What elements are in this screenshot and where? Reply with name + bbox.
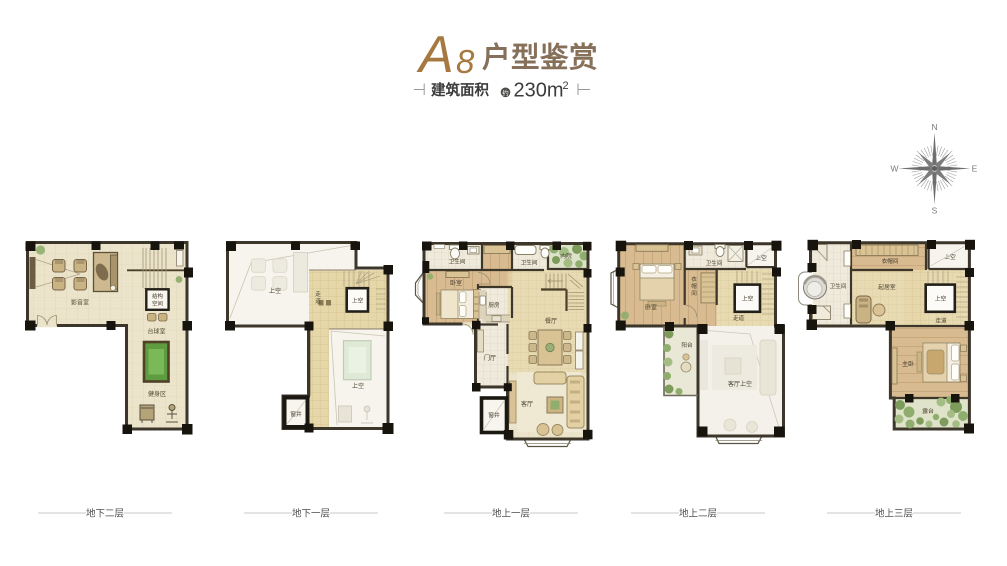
svg-text:约: 约 [502,88,509,97]
svg-text:露台: 露台 [922,407,934,415]
svg-text:台球室: 台球室 [147,328,165,336]
svg-text:结构: 结构 [152,292,163,300]
svg-text:衣帽间: 衣帽间 [882,257,899,265]
svg-text:卫生间: 卫生间 [449,258,466,266]
svg-text:N: N [931,122,937,132]
svg-text:卧室: 卧室 [450,279,462,287]
svg-text:2: 2 [563,80,569,92]
svg-text:衣: 衣 [691,275,697,283]
svg-text:卫生间: 卫生间 [521,259,538,267]
svg-text:卫生间: 卫生间 [830,282,847,290]
svg-text:230m: 230m [514,80,564,102]
svg-text:8: 8 [456,43,475,80]
svg-text:门厅: 门厅 [484,354,496,362]
svg-text:影音室: 影音室 [71,299,89,307]
svg-text:上空: 上空 [352,382,364,390]
svg-text:窗井: 窗井 [290,410,302,418]
svg-text:阳台: 阳台 [681,341,693,349]
svg-text:上空: 上空 [742,295,754,303]
svg-text:内院: 内院 [560,252,572,260]
svg-text:走: 走 [315,290,321,298]
svg-text:帽: 帽 [691,282,697,290]
svg-text:地下二层: 地下二层 [86,508,124,520]
svg-text:上空: 上空 [935,295,947,303]
svg-text:户型鉴赏: 户型鉴赏 [482,41,598,74]
svg-text:上空: 上空 [269,287,281,295]
svg-text:间: 间 [691,289,697,297]
svg-text:客厅: 客厅 [521,400,533,408]
svg-text:地上三层: 地上三层 [875,508,913,520]
svg-text:地上二层: 地上二层 [679,508,717,520]
svg-text:地下一层: 地下一层 [292,508,330,520]
svg-text:窗井: 窗井 [488,411,500,419]
svg-text:建筑面积: 建筑面积 [431,81,489,99]
svg-text:主卧: 主卧 [902,360,914,368]
svg-text:客厅上空: 客厅上空 [728,380,752,388]
svg-text:卫生间: 卫生间 [706,259,723,267]
svg-text:餐厅: 餐厅 [545,317,557,325]
svg-text:地上一层: 地上一层 [492,508,530,520]
svg-text:走道: 走道 [733,314,745,322]
svg-text:健身区: 健身区 [148,390,166,398]
svg-text:E: E [972,164,978,174]
svg-text:道: 道 [315,297,321,305]
svg-text:厨房: 厨房 [488,301,500,309]
svg-text:A: A [416,26,454,84]
svg-text:走道: 走道 [935,317,947,325]
svg-text:卧室: 卧室 [645,304,657,312]
svg-text:起居室: 起居室 [878,283,896,291]
svg-text:S: S [932,206,938,216]
svg-text:W: W [890,164,898,174]
svg-text:上空: 上空 [352,297,364,305]
svg-text:空间: 空间 [152,299,163,307]
